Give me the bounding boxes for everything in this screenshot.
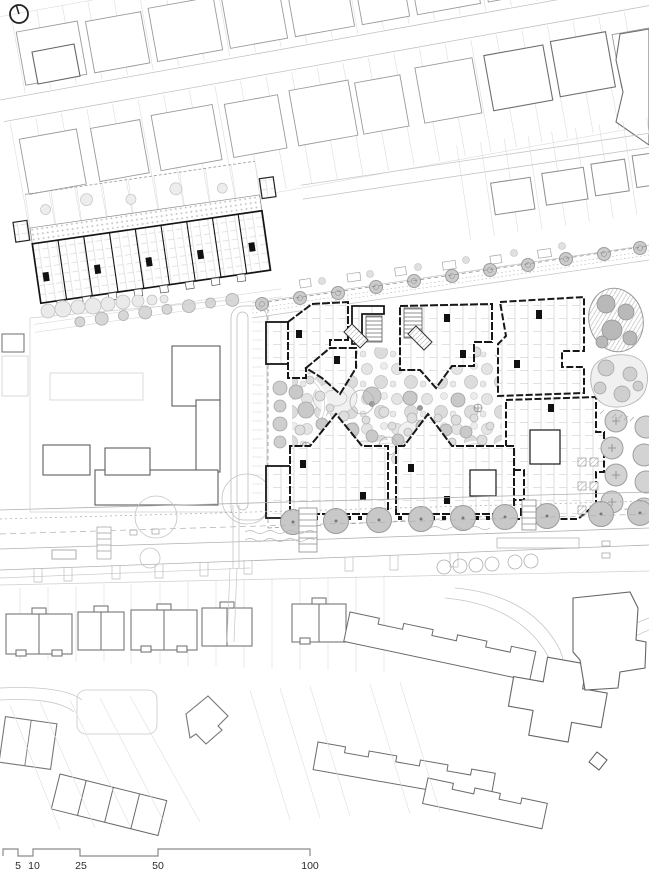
rotated-house bbox=[186, 696, 228, 744]
scale-label-50: 50 bbox=[152, 860, 164, 872]
building-east-lower bbox=[506, 397, 604, 519]
parking-street bbox=[231, 306, 267, 520]
scale-label-10: 10 bbox=[28, 860, 40, 872]
school-building bbox=[43, 346, 220, 505]
site-plan-canvas: 5 10 25 50 100 bbox=[0, 0, 649, 877]
scale-bar: 5 10 25 50 100 bbox=[3, 849, 319, 872]
building-east-upper bbox=[498, 297, 584, 396]
context-south bbox=[0, 568, 649, 836]
crossing bbox=[299, 508, 317, 552]
planting-bed-1 bbox=[582, 282, 649, 357]
school-plot bbox=[2, 295, 272, 524]
street-trees bbox=[256, 242, 647, 311]
site-plan-drawing: 5 10 25 50 100 bbox=[0, 0, 649, 877]
deck-stripes bbox=[366, 316, 382, 342]
development-site bbox=[266, 246, 649, 535]
tree-canopy-outline bbox=[222, 474, 272, 524]
scale-label-100: 100 bbox=[301, 860, 319, 872]
north-arrow bbox=[10, 5, 28, 24]
scale-label-5: 5 bbox=[15, 860, 21, 872]
scale-label-25: 25 bbox=[75, 860, 87, 872]
semi-detached-row bbox=[6, 598, 346, 656]
